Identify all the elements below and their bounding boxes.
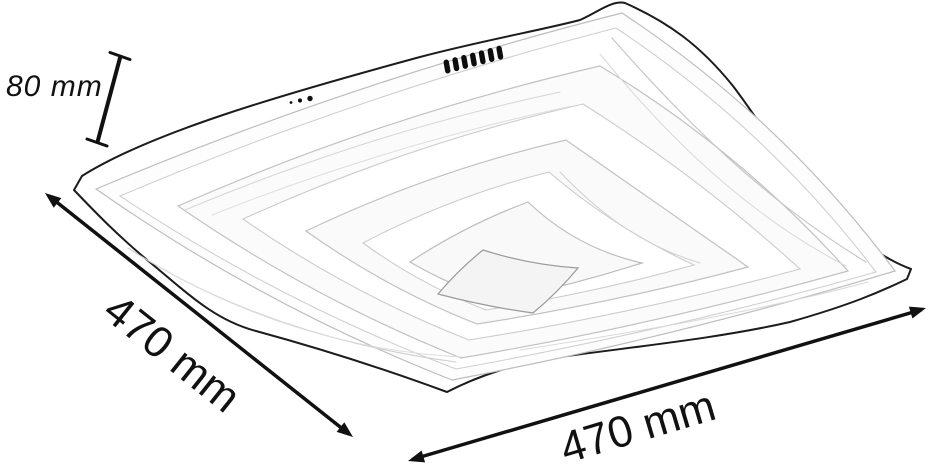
mounting-dot: [290, 101, 293, 104]
diagram-canvas: 80 mm 470 mm 470 mm: [0, 0, 933, 467]
mounting-dot: [307, 96, 312, 101]
height-dimension-label: 80 mm: [6, 70, 103, 103]
mounting-dot: [298, 98, 302, 102]
ceiling-lamp-illustration: [74, 3, 911, 392]
front-width-arrowhead-left: [406, 451, 425, 467]
height-dimension: 80 mm: [6, 53, 130, 147]
front-width-arrowhead-right: [909, 302, 928, 318]
lamp-dimension-diagram: 80 mm 470 mm 470 mm: [0, 0, 933, 467]
